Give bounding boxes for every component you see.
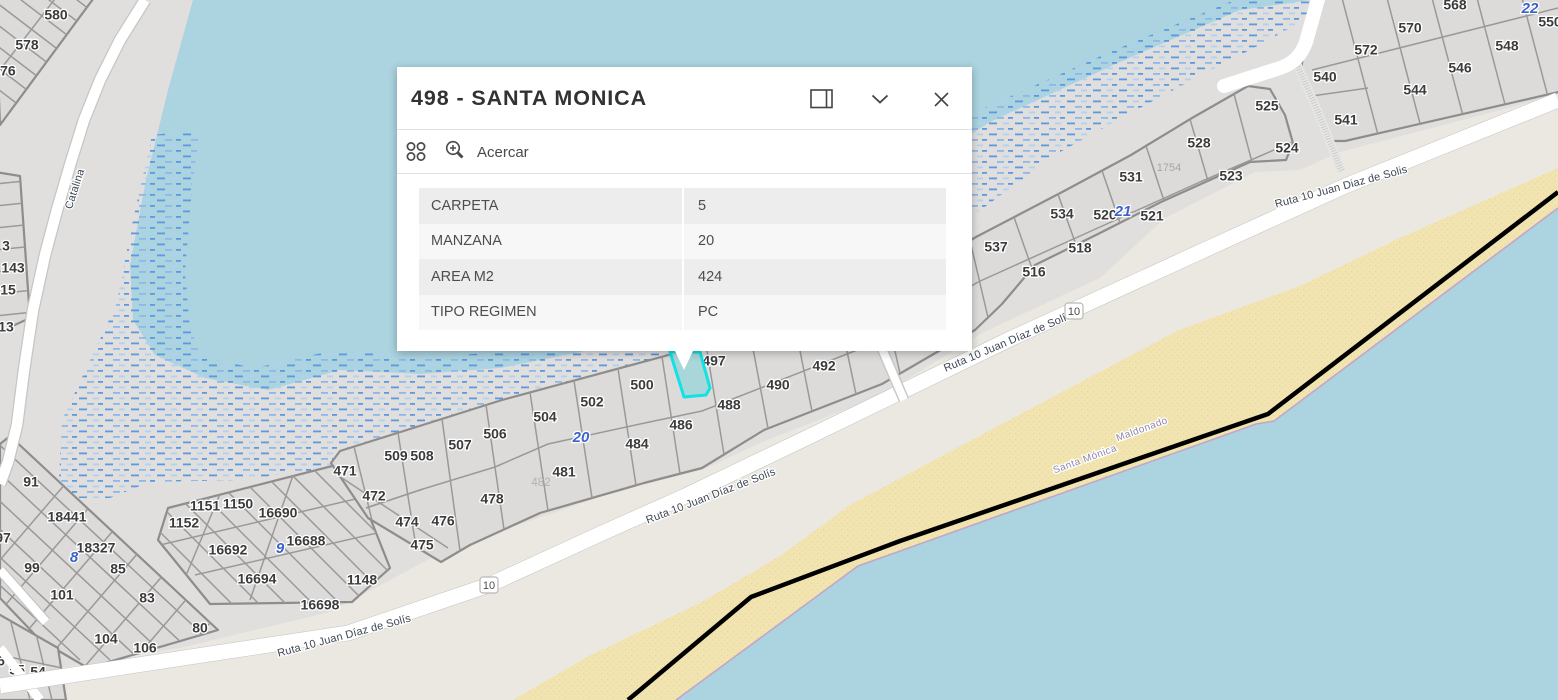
svg-text:1148: 1148 [347, 572, 378, 588]
svg-text:546: 546 [1448, 60, 1472, 76]
svg-text:99: 99 [24, 560, 40, 576]
svg-text:488: 488 [717, 397, 741, 413]
svg-text:506: 506 [483, 426, 507, 442]
svg-text:16692: 16692 [209, 542, 248, 558]
svg-text:476: 476 [431, 513, 455, 529]
svg-text:15: 15 [0, 282, 16, 298]
svg-text:478: 478 [480, 491, 504, 507]
svg-text:16688: 16688 [287, 533, 326, 549]
svg-text:22: 22 [1521, 0, 1539, 17]
svg-text:143: 143 [1, 260, 25, 276]
svg-text:1150: 1150 [223, 496, 254, 512]
svg-text:474: 474 [395, 514, 419, 530]
svg-text:10: 10 [483, 580, 495, 592]
svg-text:16694: 16694 [238, 571, 277, 587]
svg-text:18327: 18327 [77, 540, 116, 556]
svg-text:576: 576 [0, 63, 16, 79]
svg-text:544: 544 [1403, 82, 1427, 98]
svg-text:490: 490 [766, 377, 790, 393]
svg-text:1152: 1152 [169, 515, 200, 531]
svg-text:550: 550 [1538, 14, 1558, 30]
svg-text:482: 482 [531, 477, 550, 489]
svg-text:471: 471 [333, 463, 357, 479]
svg-text:548: 548 [1495, 38, 1519, 54]
svg-text:83: 83 [139, 590, 155, 606]
svg-text:541: 541 [1334, 112, 1358, 128]
svg-text:578: 578 [15, 37, 39, 53]
svg-text:516: 516 [1022, 264, 1046, 280]
svg-text:497: 497 [702, 353, 726, 369]
svg-text:20: 20 [572, 429, 590, 446]
svg-text:9: 9 [276, 540, 285, 557]
svg-text:572: 572 [1354, 42, 1378, 58]
svg-text:537: 537 [984, 239, 1008, 255]
svg-text:484: 484 [625, 436, 649, 452]
svg-text:18441: 18441 [48, 509, 87, 525]
svg-text:16690: 16690 [259, 505, 298, 521]
svg-text:85: 85 [110, 561, 126, 577]
svg-text:509: 509 [384, 448, 408, 464]
svg-text:97: 97 [0, 530, 11, 546]
svg-text:472: 472 [362, 488, 386, 504]
svg-text:521: 521 [1140, 208, 1164, 224]
svg-text:525: 525 [1255, 98, 1279, 114]
svg-text:507: 507 [448, 437, 472, 453]
svg-text:80: 80 [192, 620, 208, 636]
svg-text:502: 502 [580, 394, 604, 410]
svg-text:570: 570 [1398, 20, 1422, 36]
svg-text:528: 528 [1187, 135, 1211, 151]
svg-text:481: 481 [552, 464, 576, 480]
svg-text:91: 91 [23, 474, 39, 490]
svg-text:534: 534 [1050, 206, 1074, 222]
svg-text:518: 518 [1068, 240, 1092, 256]
svg-text:500: 500 [630, 377, 654, 393]
svg-text:1151: 1151 [190, 498, 221, 514]
svg-text:523: 523 [1219, 168, 1243, 184]
svg-text:3: 3 [2, 238, 10, 254]
svg-text:13: 13 [0, 319, 14, 335]
svg-text:508: 508 [410, 448, 434, 464]
svg-text:540: 540 [1313, 69, 1337, 85]
svg-text:504: 504 [533, 409, 557, 425]
svg-text:524: 524 [1275, 140, 1299, 156]
svg-text:568: 568 [1443, 0, 1467, 13]
svg-text:580: 580 [44, 7, 68, 23]
svg-text:492: 492 [812, 358, 836, 374]
svg-text:486: 486 [669, 417, 693, 433]
svg-text:101: 101 [50, 587, 74, 603]
svg-text:531: 531 [1119, 169, 1143, 185]
svg-text:520: 520 [1093, 207, 1117, 223]
svg-text:8: 8 [70, 549, 79, 566]
svg-text:21: 21 [1114, 203, 1132, 220]
svg-text:1754: 1754 [1157, 162, 1181, 174]
svg-text:104: 104 [94, 631, 118, 647]
svg-text:475: 475 [410, 537, 434, 553]
svg-text:16698: 16698 [301, 597, 340, 613]
svg-text:10: 10 [1068, 306, 1080, 318]
svg-text:106: 106 [133, 640, 157, 656]
